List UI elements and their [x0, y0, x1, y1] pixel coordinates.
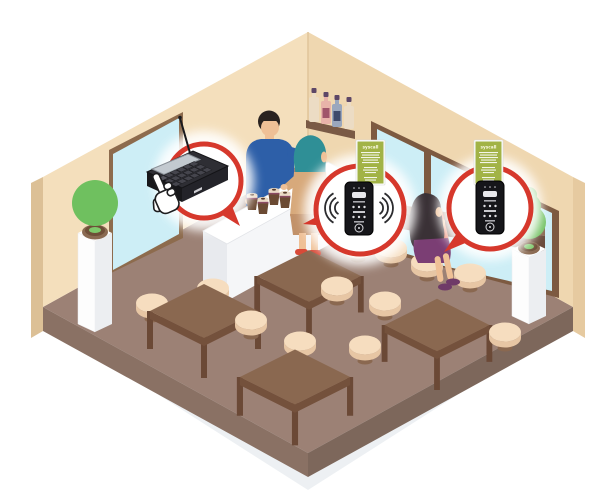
scene-svg: syscall syscall: [0, 0, 615, 493]
barista-face: [261, 119, 279, 137]
wall-left-edge: [31, 177, 43, 338]
customer-face: [321, 152, 327, 163]
plant-foliage: [72, 180, 118, 226]
guest-pager: [476, 181, 504, 234]
coffee-cup: [258, 197, 269, 214]
plant-left: [72, 180, 118, 332]
cafe-paging-illustration: syscall syscall: [0, 0, 615, 493]
guest-pager: [345, 182, 373, 235]
banner-logo: syscall: [363, 145, 379, 150]
coffee-cup: [269, 188, 280, 205]
wall-right-edge: [573, 177, 585, 338]
coffee-cup: [280, 191, 291, 208]
banner-logo: syscall: [481, 145, 497, 150]
